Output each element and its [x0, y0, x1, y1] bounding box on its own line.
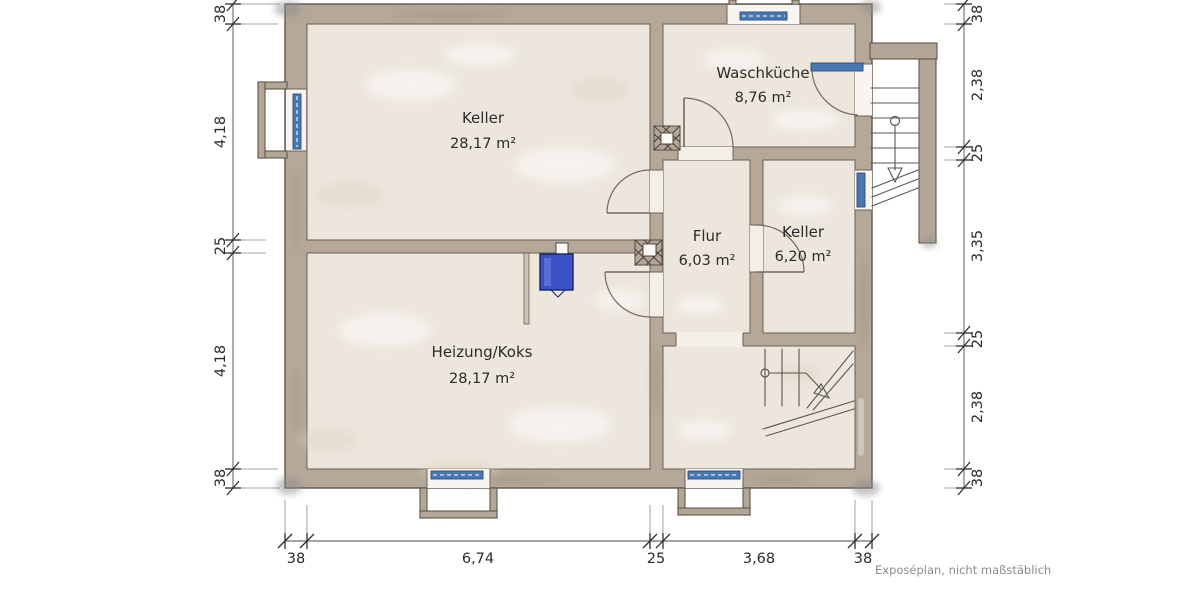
room-label-flur: Flur	[693, 227, 722, 245]
dim-label: 3,68	[743, 551, 775, 567]
room-label-waschkueche: Waschküche	[716, 64, 809, 82]
dimension-chain-right: 38 2,38 25 3,35 25 2,38 38	[944, 0, 986, 495]
plan-caption: Exposéplan, nicht maßstäblich	[875, 563, 1051, 577]
chimney-block-2	[635, 240, 662, 265]
room-area-heizung-koks: 28,17 m²	[449, 371, 515, 387]
dim-label: 4,18	[213, 345, 229, 377]
dim-label: 4,18	[213, 116, 229, 148]
floor-plan-drawing: 38 4,18 25 4,18 38 38 2,38 25 3,35 25	[0, 0, 1200, 600]
dim-label: 25	[647, 551, 665, 567]
flur-stair-opening	[676, 332, 743, 347]
dimension-chain-bottom: 38 6,74 25 3,68 38	[278, 500, 879, 567]
room-area-keller-klein: 6,20 m²	[775, 249, 832, 265]
dim-label: 38	[213, 5, 229, 23]
room-stair-area	[663, 346, 855, 469]
window-bottom-a	[427, 469, 490, 488]
dim-label: 38	[213, 469, 229, 487]
dim-label: 38	[970, 469, 986, 487]
room-keller-klein	[763, 160, 855, 333]
partition-stub	[524, 253, 529, 324]
floor-plan-page: 38 4,18 25 4,18 38 38 2,38 25 3,35 25	[0, 0, 1200, 600]
room-label-heizung-koks: Heizung/Koks	[432, 343, 533, 361]
room-label-keller-gross: Keller	[462, 109, 505, 127]
room-label-keller-klein: Keller	[782, 223, 825, 241]
window-bottom-b	[685, 469, 743, 488]
dim-label: 6,74	[462, 551, 494, 567]
dim-label: 38	[854, 551, 872, 567]
staircase-exterior	[871, 88, 919, 206]
watermark	[858, 398, 864, 456]
dim-label: 2,38	[970, 69, 986, 101]
window-right	[855, 170, 872, 210]
dim-label: 25	[970, 144, 986, 162]
room-waschkueche	[663, 24, 855, 147]
dim-label: 2,38	[970, 391, 986, 423]
room-area-keller-gross: 28,17 m²	[450, 136, 516, 152]
room-area-waschkueche: 8,76 m²	[735, 90, 792, 106]
room-area-flur: 6,03 m²	[679, 253, 736, 269]
dimension-chain-left: 38 4,18 25 4,18 38	[213, 0, 280, 495]
dim-label: 25	[213, 237, 229, 255]
chimney-block-1	[654, 126, 680, 150]
window-top	[727, 4, 800, 24]
dim-label: 38	[970, 5, 986, 23]
dim-label: 38	[287, 551, 305, 567]
stair-direction-arrow	[888, 117, 902, 183]
window-left	[285, 89, 307, 151]
dim-label: 3,35	[970, 230, 986, 262]
dim-label: 25	[970, 330, 986, 348]
exterior-stairwell	[870, 43, 937, 243]
